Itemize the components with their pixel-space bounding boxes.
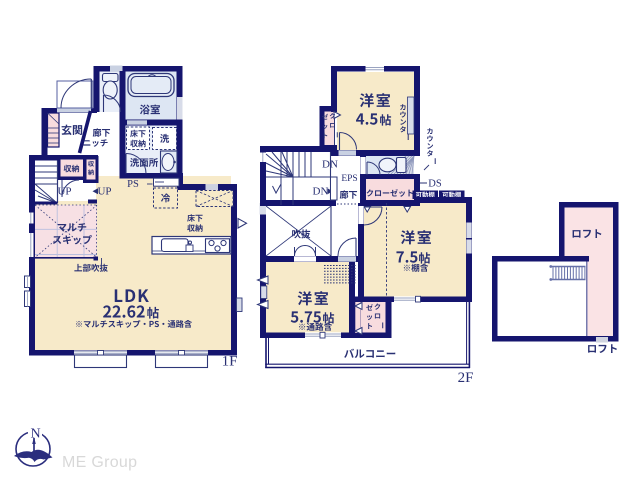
- svg-text:PS: PS: [127, 179, 139, 190]
- svg-text:DN: DN: [322, 159, 338, 171]
- svg-text:UP: UP: [97, 186, 111, 198]
- svg-text:ME Group: ME Group: [62, 454, 137, 471]
- svg-text:N: N: [30, 427, 40, 442]
- svg-text:DS: DS: [428, 179, 442, 190]
- svg-text:UP: UP: [57, 186, 71, 198]
- svg-text:DN: DN: [313, 186, 329, 198]
- svg-text:EPS: EPS: [341, 174, 357, 184]
- svg-text:1F: 1F: [222, 354, 238, 370]
- svg-text:2F: 2F: [458, 370, 474, 386]
